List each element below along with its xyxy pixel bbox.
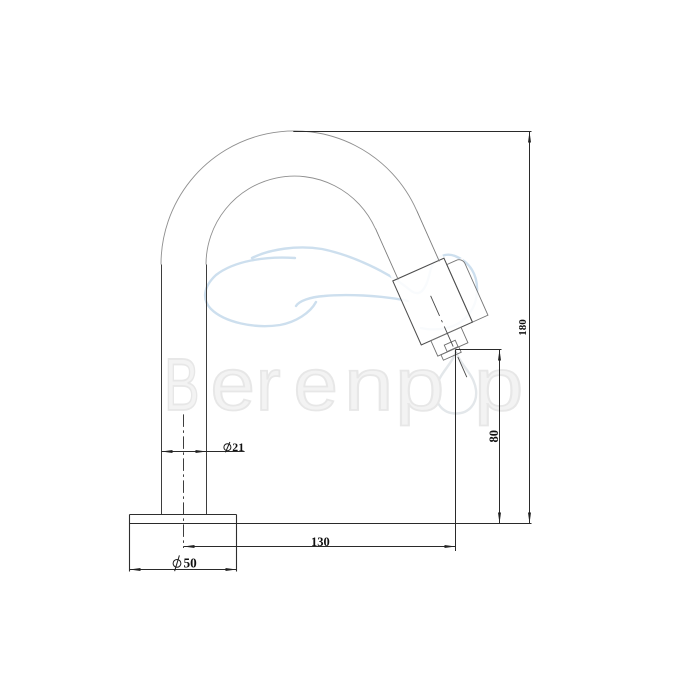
svg-text:r: r — [256, 343, 281, 426]
svg-text:21: 21 — [232, 440, 244, 454]
svg-text:130: 130 — [311, 535, 330, 549]
svg-text:B: B — [164, 343, 200, 426]
svg-text:180: 180 — [517, 319, 529, 336]
svg-text:80: 80 — [487, 430, 501, 443]
svg-text:p: p — [395, 344, 444, 426]
svg-text:n: n — [344, 344, 393, 426]
svg-text:50: 50 — [184, 556, 198, 571]
svg-text:e: e — [294, 344, 338, 427]
svg-text:e: e — [211, 344, 255, 427]
